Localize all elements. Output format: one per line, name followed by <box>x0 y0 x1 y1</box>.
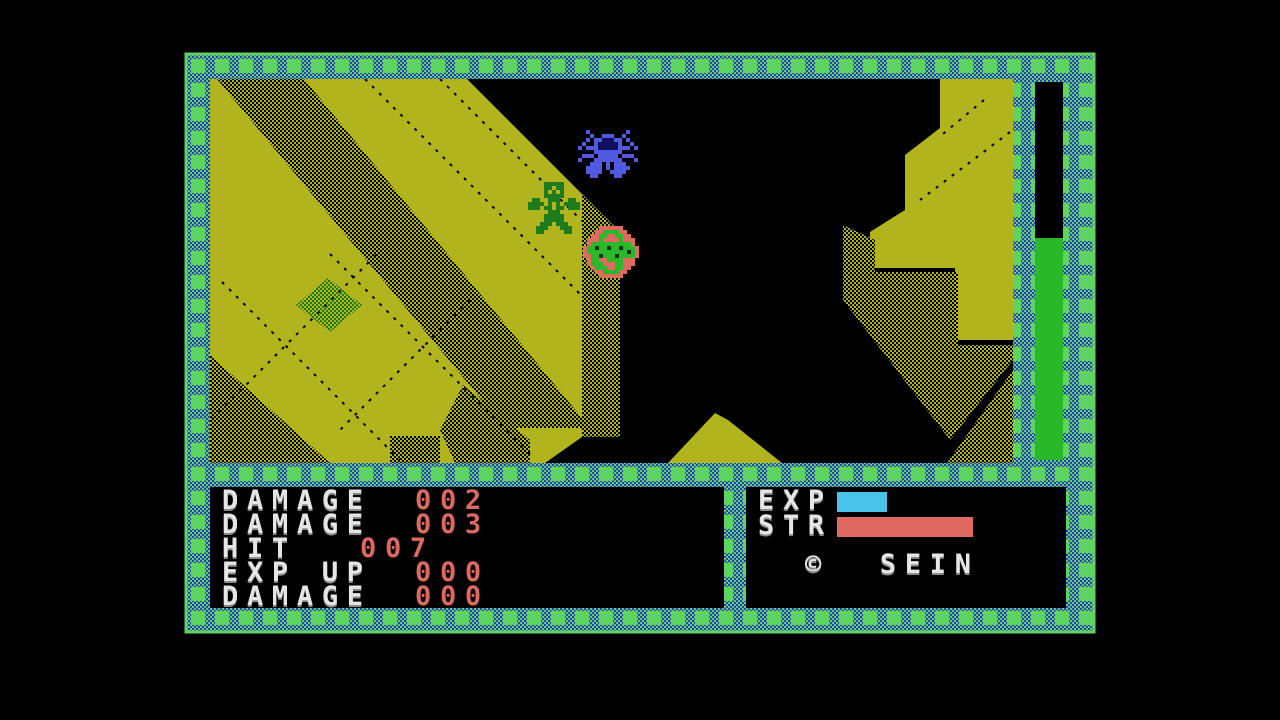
game-viewport[interactable] <box>210 79 1013 463</box>
str-stat-label: STR <box>758 514 833 538</box>
damage-label: DAMAGE <box>222 585 372 609</box>
message-panel: DAMAGE 002 DAMAGE 003 HIT 007 EXP UP 000… <box>210 487 724 608</box>
status-panel: EXP STR © SEIN <box>746 487 1066 608</box>
copyright-text: © SEIN <box>805 553 980 577</box>
message-line: DAMAGE 000 <box>210 585 724 609</box>
damage-value: 000 <box>415 585 490 609</box>
health-bar-fill <box>1035 238 1063 460</box>
game-screen: DAMAGE 002 DAMAGE 003 HIT 007 EXP UP 000… <box>0 0 1280 720</box>
